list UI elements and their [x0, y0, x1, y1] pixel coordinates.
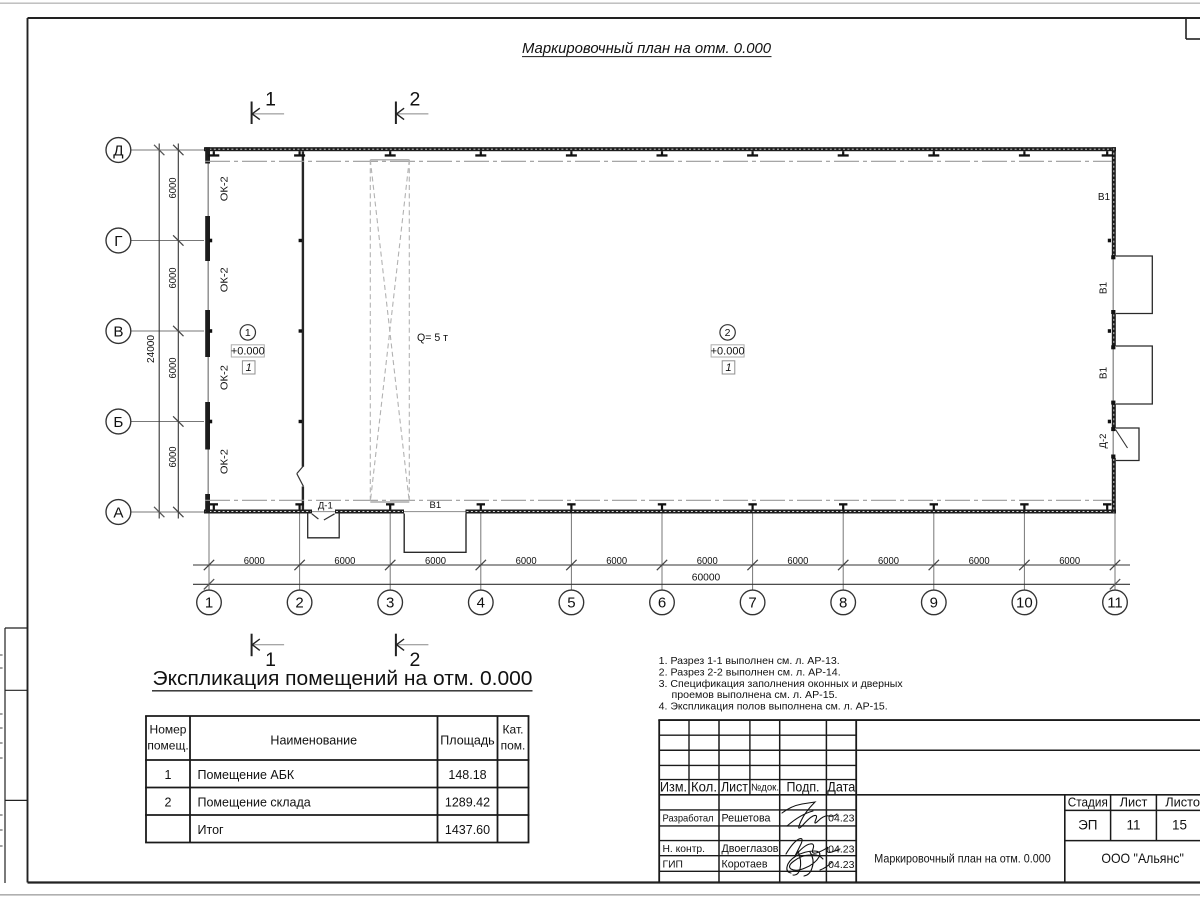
svg-text:Разработал: Разработал — [663, 813, 714, 825]
svg-text:4: 4 — [477, 595, 485, 612]
svg-text:04.23: 04.23 — [828, 843, 854, 855]
svg-text:+0.000: +0.000 — [711, 345, 745, 357]
svg-text:В1: В1 — [429, 500, 441, 511]
svg-text:11: 11 — [1107, 595, 1123, 612]
svg-text:Маркировочный план на отм. 0.0: Маркировочный план на отм. 0.000 — [522, 41, 772, 57]
svg-text:ЭП: ЭП — [1078, 818, 1097, 833]
svg-text:Лист: Лист — [1120, 795, 1148, 810]
svg-text:ОК-2: ОК-2 — [219, 365, 231, 390]
svg-text:Площадь: Площадь — [440, 734, 494, 748]
svg-text:Кат.: Кат. — [503, 723, 524, 737]
svg-text:6000: 6000 — [1059, 556, 1080, 567]
svg-text:Маркировочный план на отм. 0.0: Маркировочный план на отм. 0.000 — [874, 852, 1051, 866]
svg-text:Помещение склада: Помещение склада — [198, 796, 311, 810]
svg-text:24000: 24000 — [145, 335, 157, 363]
svg-text:04.23: 04.23 — [828, 859, 854, 871]
svg-text:В1: В1 — [1099, 366, 1110, 379]
svg-text:6: 6 — [658, 595, 666, 612]
svg-text:Д-1: Д-1 — [318, 500, 333, 511]
svg-text:6000: 6000 — [697, 556, 718, 567]
svg-text:А: А — [113, 504, 124, 521]
svg-text:помещ.: помещ. — [147, 739, 188, 753]
svg-text:ООО "Альянс": ООО "Альянс" — [1101, 850, 1184, 866]
svg-text:6000: 6000 — [244, 556, 265, 567]
svg-text:6000: 6000 — [168, 267, 179, 288]
svg-text:Б: Б — [113, 414, 123, 431]
svg-text:2. Разрез 2-2 выполнен см. л.: 2. Разрез 2-2 выполнен см. л. АР-14. — [659, 667, 841, 678]
svg-text:Q= 5 т: Q= 5 т — [417, 332, 448, 344]
svg-text:Двоеглазов: Двоеглазов — [722, 843, 779, 855]
svg-text:6000: 6000 — [168, 357, 179, 378]
svg-text:Коротаев: Коротаев — [722, 858, 768, 870]
svg-text:ГИП: ГИП — [663, 859, 683, 870]
svg-text:В1: В1 — [1098, 192, 1111, 203]
svg-text:Д-2: Д-2 — [1098, 434, 1109, 449]
svg-text:148.18: 148.18 — [448, 768, 486, 782]
svg-text:2: 2 — [725, 327, 731, 339]
svg-text:2: 2 — [165, 796, 172, 810]
svg-text:6000: 6000 — [168, 177, 179, 198]
svg-text:Экспликация помещений на отм.: Экспликация помещений на отм. 0.000 — [153, 667, 533, 690]
svg-text:Кол.: Кол. — [691, 779, 717, 794]
svg-text:6000: 6000 — [878, 556, 899, 567]
svg-text:11: 11 — [1126, 818, 1140, 833]
svg-text:1289.42: 1289.42 — [445, 796, 490, 810]
svg-text:Изм.: Изм. — [660, 779, 687, 794]
svg-text:Г: Г — [114, 233, 122, 250]
svg-text:Д: Д — [113, 142, 123, 159]
svg-text:1: 1 — [165, 768, 172, 782]
svg-text:ОК-2: ОК-2 — [219, 176, 231, 201]
svg-text:ОК-2: ОК-2 — [219, 267, 231, 292]
svg-text:Н. контр.: Н. контр. — [663, 844, 706, 855]
svg-text:Помещение АБК: Помещение АБК — [198, 768, 295, 782]
svg-text:1: 1 — [205, 595, 213, 612]
svg-text:Итог: Итог — [198, 823, 225, 837]
svg-text:1. Разрез 1-1 выполнен см. л.: 1. Разрез 1-1 выполнен см. л. АР-13. — [659, 656, 840, 667]
svg-text:6000: 6000 — [787, 556, 808, 567]
svg-text:6000: 6000 — [606, 556, 627, 567]
svg-text:15: 15 — [1172, 818, 1187, 833]
svg-text:6000: 6000 — [516, 556, 537, 567]
svg-text:1: 1 — [725, 362, 731, 374]
svg-text:В: В — [113, 323, 123, 340]
svg-text:Наименование: Наименование — [270, 734, 357, 748]
svg-text:Лист: Лист — [721, 779, 748, 794]
svg-text:1437.60: 1437.60 — [445, 823, 490, 837]
svg-text:В1: В1 — [1099, 281, 1110, 294]
svg-text:6000: 6000 — [334, 556, 355, 567]
svg-text:60000: 60000 — [692, 571, 721, 583]
svg-text:2: 2 — [295, 595, 303, 612]
svg-text:пом.: пом. — [501, 739, 526, 753]
svg-text:3. Спецификация заполнения око: 3. Спецификация заполнения оконных и две… — [659, 678, 904, 690]
svg-text:Подп.: Подп. — [787, 779, 820, 794]
svg-text:1: 1 — [246, 362, 252, 374]
svg-text:5: 5 — [567, 595, 575, 612]
svg-text:+0.000: +0.000 — [231, 345, 265, 357]
svg-text:проемов выполнена см. л. АР-15: проемов выполнена см. л. АР-15. — [672, 690, 838, 701]
svg-text:7: 7 — [748, 595, 756, 612]
svg-text:Решетова: Решетова — [722, 813, 771, 825]
svg-text:6000: 6000 — [969, 556, 990, 567]
svg-text:Дата: Дата — [827, 779, 855, 794]
svg-text:4. Экспликация полов выполнена: 4. Экспликация полов выполнена см. л. АР… — [659, 702, 888, 713]
svg-text:8: 8 — [839, 595, 847, 612]
svg-text:9: 9 — [930, 595, 938, 612]
svg-text:3: 3 — [386, 595, 394, 612]
svg-text:ОК-2: ОК-2 — [219, 449, 231, 474]
svg-text:Номер: Номер — [150, 723, 187, 737]
svg-text:2: 2 — [409, 89, 420, 111]
svg-text:1: 1 — [245, 327, 251, 339]
svg-text:Листов: Листов — [1165, 795, 1200, 810]
svg-text:Стадия: Стадия — [1068, 795, 1108, 810]
svg-text:10: 10 — [1016, 595, 1033, 612]
svg-text:6000: 6000 — [425, 556, 446, 567]
svg-text:6000: 6000 — [168, 446, 179, 467]
svg-text:04.23: 04.23 — [828, 813, 854, 825]
svg-text:1: 1 — [265, 89, 276, 111]
svg-text:№док.: №док. — [751, 783, 779, 794]
